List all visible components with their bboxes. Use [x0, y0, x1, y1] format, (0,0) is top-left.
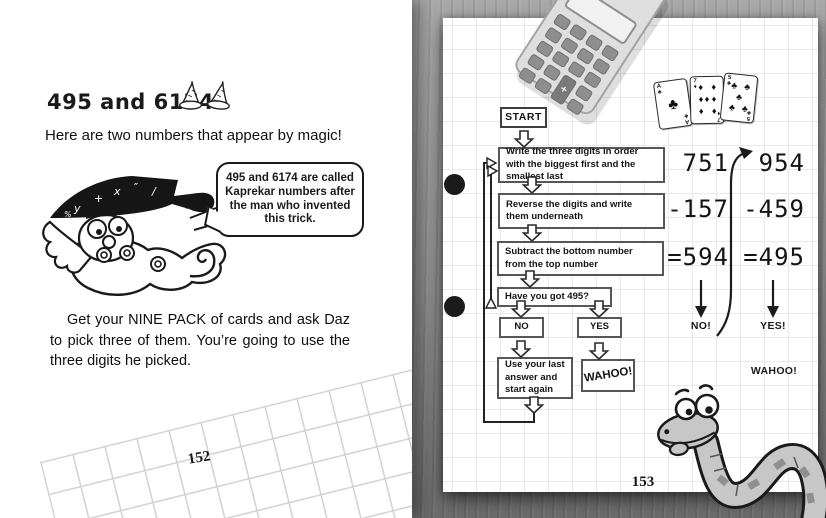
flowchart-question: Have you got 495?	[497, 287, 612, 307]
example-right-row3: =495	[715, 243, 805, 271]
example-yes-label: YES!	[751, 320, 795, 332]
flowchart-start: START	[500, 107, 547, 128]
flowchart-loop-step: Use your last answer and start again	[497, 357, 573, 399]
calculator-key	[567, 60, 586, 78]
wizard-hat-icon	[205, 77, 235, 116]
club-pip-icon: ♣	[664, 96, 682, 113]
speech-bubble: 495 and 6174 are called Kaprekar numbers…	[216, 162, 364, 237]
playing-card-ace: A♣ ♣ A♣	[653, 78, 693, 130]
calculator-key	[585, 34, 604, 52]
calculator-key	[583, 71, 602, 89]
diamond-pip-icon: ♦	[709, 83, 719, 92]
intro-text: Here are two numbers that appear by magi…	[45, 127, 342, 144]
hole-punch-dot	[444, 174, 465, 195]
speech-bubble-text: 495 and 6174 are called Kaprekar numbers…	[225, 172, 355, 225]
svg-text:y: y	[73, 202, 81, 215]
calculator-key	[592, 57, 611, 75]
club-pip-icon: ♣	[726, 103, 737, 113]
example-wahoo-label: WAHOO!	[744, 365, 804, 377]
left-page: 495 and 6174 Here are two numbers that a…	[0, 0, 412, 518]
example-right-row2: -459	[715, 195, 805, 223]
snake-illustration	[648, 385, 826, 518]
calculator-key	[574, 84, 593, 102]
wizard-illustration: y+x ″/%	[40, 152, 240, 310]
diamond-pip-icon: ♦	[696, 107, 706, 116]
example-no-label: NO!	[679, 320, 723, 332]
club-pip-icon: ♣	[734, 93, 745, 103]
book-spread: 495 and 6174 Here are two numbers that a…	[0, 0, 826, 518]
body-text: Get your NINE PACK of cards and ask Daz …	[50, 310, 350, 372]
example-right-row1: 954	[715, 149, 805, 177]
calculator-key	[600, 44, 619, 62]
calculator-key	[560, 37, 579, 55]
calculator-key	[526, 53, 545, 71]
flowchart-wahoo: WAHOO!	[581, 359, 635, 392]
svg-text:x: x	[113, 185, 121, 198]
card-corner: A♣	[655, 83, 664, 96]
hole-punch-dot	[444, 296, 465, 317]
club-pip-icon: ♣	[729, 81, 740, 91]
svg-text:%: %	[64, 210, 72, 219]
playing-card-five: 5♣ ♣ ♣ ♣ ♣ ♣ 5♣	[720, 72, 759, 123]
diamond-pip-icon: ♦	[709, 95, 719, 104]
calculator-key	[569, 23, 588, 41]
calculator-key	[551, 50, 570, 68]
svg-text:+: +	[94, 192, 103, 205]
calculator-key	[542, 64, 561, 82]
calculator-key	[535, 40, 554, 58]
calculator-key	[576, 47, 595, 65]
diamond-pip-icon: ♦	[696, 83, 706, 92]
flowchart-yes: YES	[577, 317, 622, 338]
flowchart-no: NO	[499, 317, 544, 338]
calculator-key	[553, 13, 572, 31]
card-corner: 5♣	[745, 109, 753, 122]
page-number-left: 152	[187, 448, 212, 468]
wizard-hat-icon	[178, 78, 204, 114]
club-pip-icon: ♣	[742, 82, 753, 92]
calculator-key	[544, 26, 563, 44]
flowchart-wahoo-text: WAHOO!	[583, 364, 633, 386]
